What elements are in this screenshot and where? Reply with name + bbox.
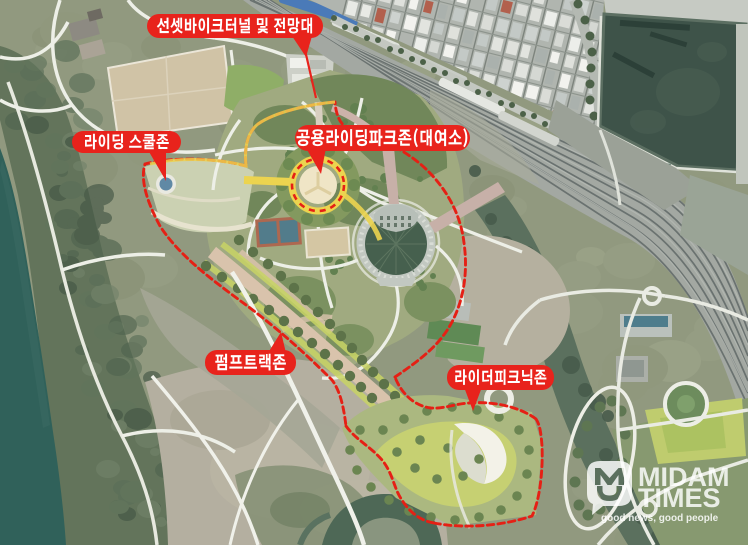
svg-text:good news, good people: good news, good people (601, 513, 719, 524)
svg-text:TIMES: TIMES (638, 483, 721, 513)
